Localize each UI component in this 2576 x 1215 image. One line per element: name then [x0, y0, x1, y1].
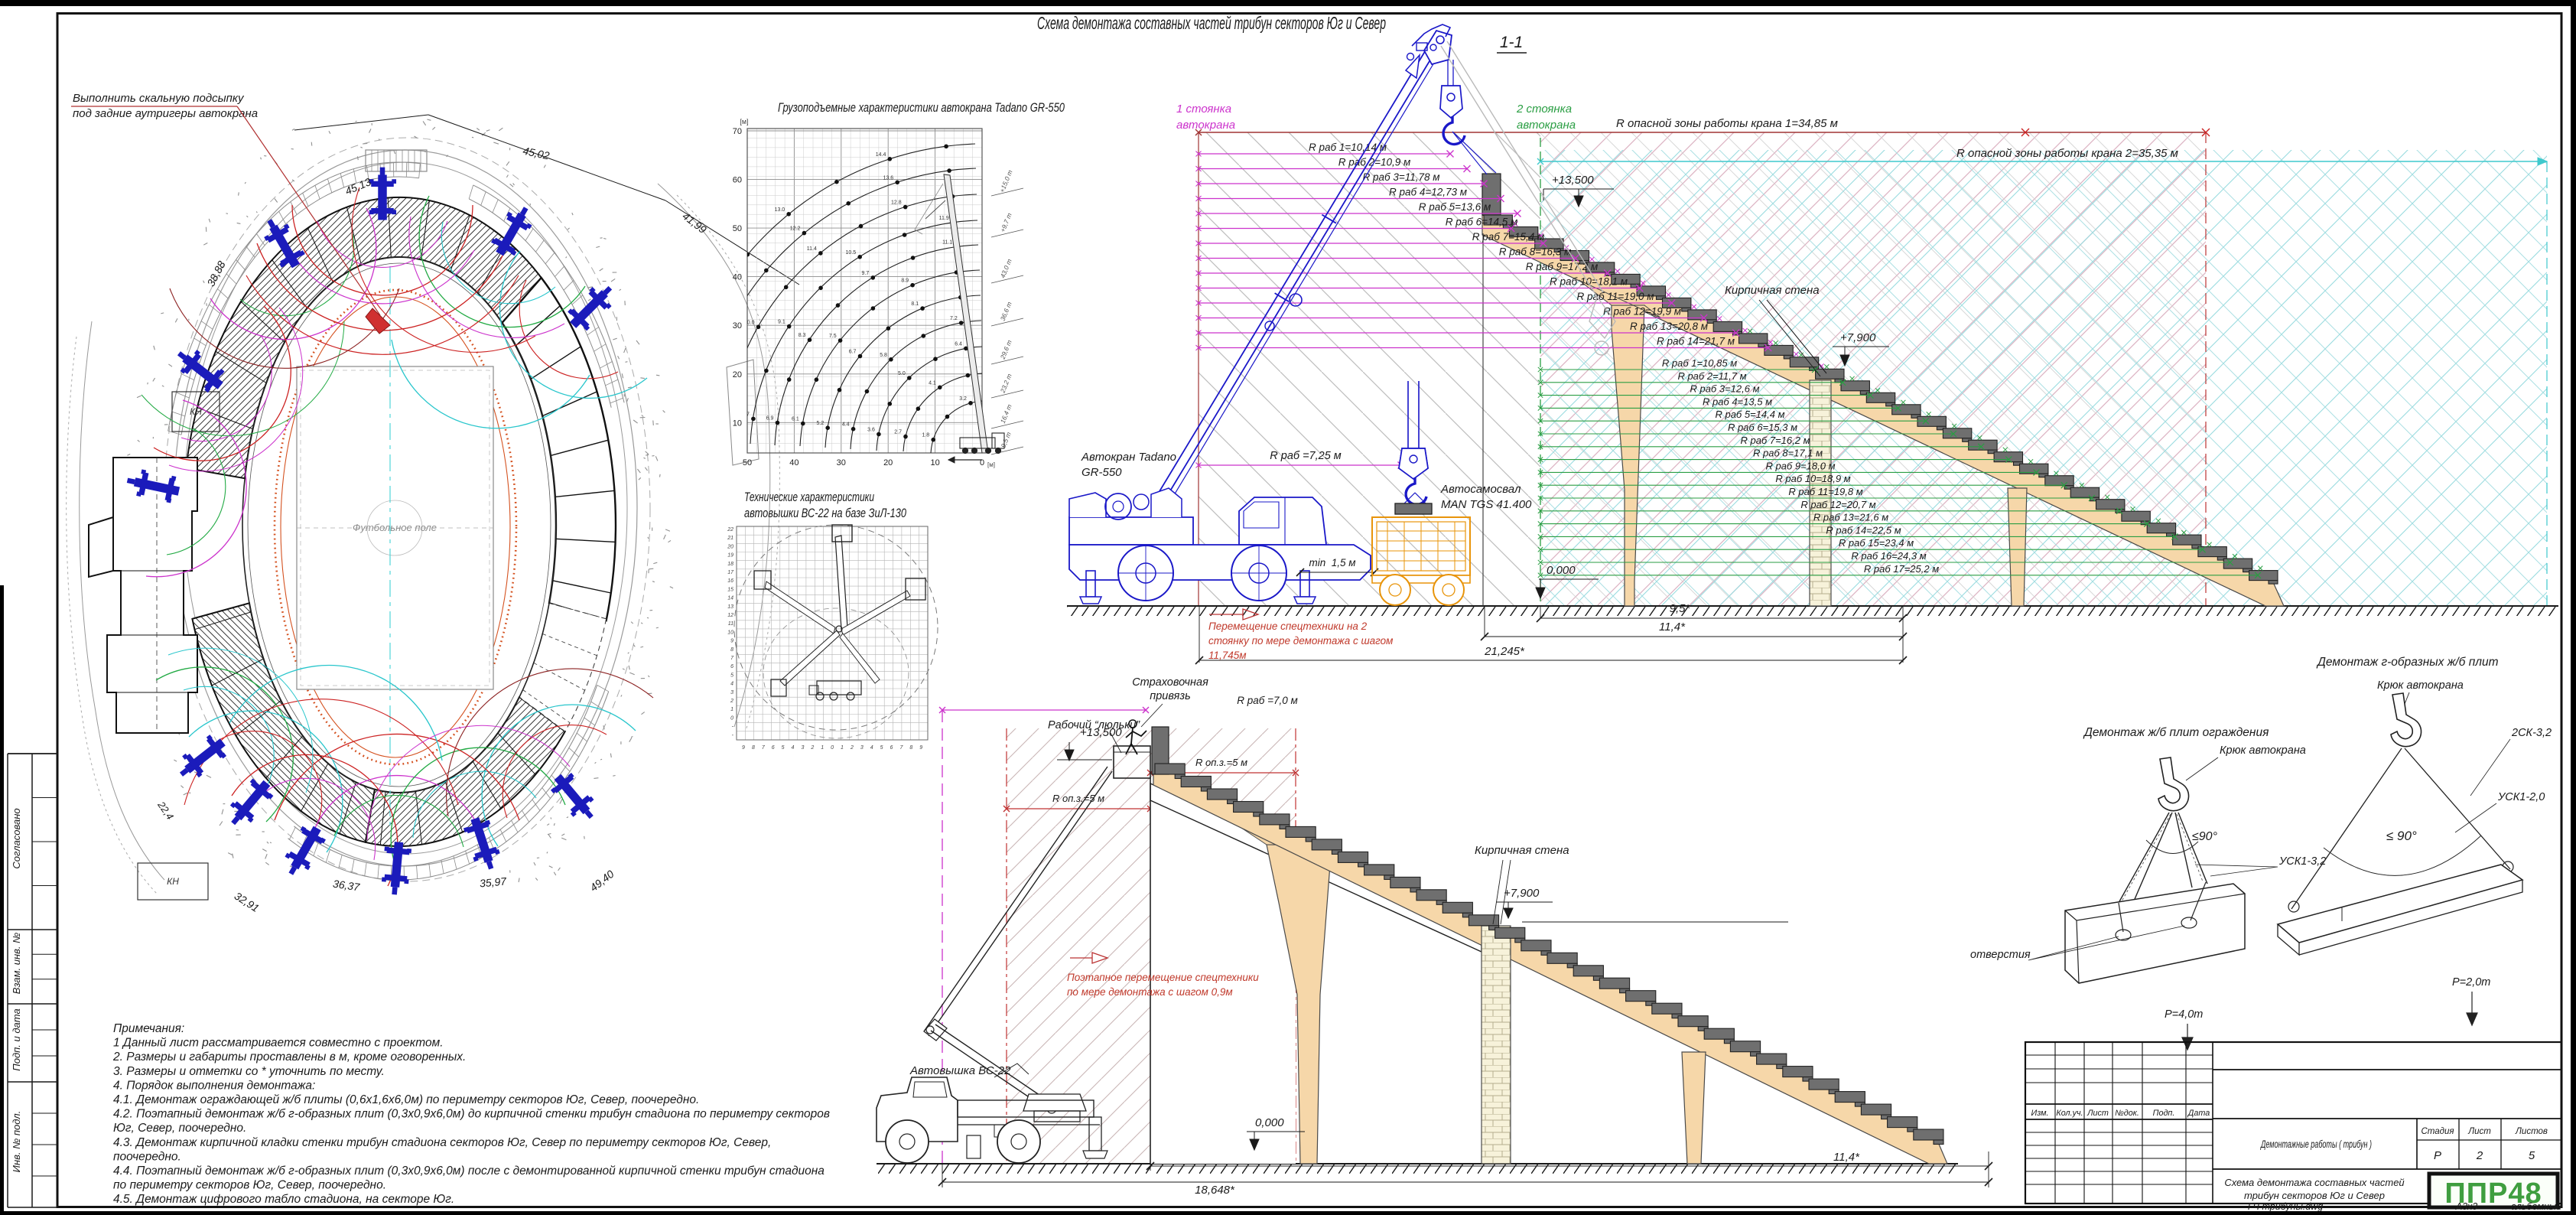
- svg-text:Автосамосвал: Автосамосвал: [1440, 483, 1521, 496]
- svg-text:13.6: 13.6: [883, 175, 894, 181]
- svg-text:№док.: №док.: [2115, 1109, 2139, 1118]
- svg-text:Крюк автокрана: Крюк автокрана: [2377, 679, 2464, 692]
- svg-text:1: 1: [821, 745, 824, 751]
- svg-text:0: 0: [730, 715, 733, 721]
- svg-text:12.8: 12.8: [891, 200, 902, 206]
- svg-text:Стадия: Стадия: [2421, 1127, 2454, 1136]
- svg-text:8: 8: [730, 647, 733, 653]
- svg-text:R раб =7,25 м: R раб =7,25 м: [1270, 450, 1342, 462]
- svg-text:14.4: 14.4: [876, 152, 886, 158]
- svg-text:R раб 5=14,4 м: R раб 5=14,4 м: [1715, 409, 1784, 420]
- svg-text:15: 15: [727, 587, 733, 592]
- svg-text:отверстия: отверстия: [1970, 949, 2031, 961]
- svg-text:+7,900: +7,900: [1840, 331, 1876, 344]
- svg-text:1: 1: [841, 745, 844, 751]
- svg-text:5.0: 5.0: [898, 371, 906, 376]
- svg-text:18,648*: 18,648*: [1195, 1184, 1235, 1197]
- svg-text:11.9: 11.9: [939, 216, 949, 221]
- svg-text:Р=2,0m: Р=2,0m: [2452, 976, 2490, 989]
- svg-text:1: 1: [730, 707, 733, 712]
- svg-text:Схема демонтажа составных част: Схема демонтажа составных частей: [2224, 1177, 2404, 1188]
- svg-text:21,245*: 21,245*: [1484, 645, 1525, 658]
- svg-text:5: 5: [730, 673, 733, 678]
- svg-text:5: 5: [2529, 1149, 2535, 1162]
- svg-text:10.5: 10.5: [846, 250, 857, 256]
- svg-text:0,000: 0,000: [1547, 564, 1576, 577]
- svg-text:60: 60: [733, 176, 742, 185]
- svg-text:2: 2: [730, 699, 733, 704]
- svg-text:6: 6: [730, 664, 733, 669]
- svg-text:5: 5: [782, 745, 785, 751]
- svg-text:Автокран Tadano: Автокран Tadano: [1081, 451, 1176, 464]
- svg-text:Подп. и дата: Подп. и дата: [11, 1008, 22, 1070]
- svg-text:≤ 90°: ≤ 90°: [2386, 829, 2417, 843]
- svg-text:30: 30: [837, 458, 846, 467]
- svg-text:Демонтажные работы ( трибун ): Демонтажные работы ( трибун ): [2260, 1138, 2372, 1150]
- svg-text:[м]: [м]: [740, 118, 748, 125]
- svg-text:4.2. Поэтапный демонтаж ж/б г-: 4.2. Поэтапный демонтаж ж/б г-образных п…: [113, 1108, 830, 1121]
- svg-text:Технические характеристики: Технические характеристики: [744, 490, 874, 504]
- svg-text:30: 30: [733, 321, 742, 331]
- svg-text:под задние аутригеры автокрана: под задние аутригеры автокрана: [73, 107, 258, 120]
- svg-text:альбомный: альбомный: [2511, 1201, 2561, 1212]
- svg-text:10: 10: [733, 419, 742, 428]
- svg-text:R раб 4=13,5 м: R раб 4=13,5 м: [1703, 396, 1772, 407]
- svg-text:4: 4: [730, 682, 733, 687]
- svg-text:10: 10: [930, 458, 939, 467]
- svg-text:R раб 12=20,7 м: R раб 12=20,7 м: [1800, 499, 1875, 510]
- svg-text:4.5. Демонтаж цифрового табло: 4.5. Демонтаж цифрового табло стадиона, …: [113, 1193, 454, 1206]
- svg-text:4.1. Демонтаж ограждающей ж/б: 4.1. Демонтаж ограждающей ж/б плиты (0,6…: [113, 1093, 699, 1106]
- svg-text:Страховочная: Страховочная: [1132, 676, 1208, 689]
- svg-text:R раб 3=12,6 м: R раб 3=12,6 м: [1690, 383, 1759, 395]
- svg-text:35,97: 35,97: [479, 875, 508, 889]
- svg-text:9: 9: [919, 745, 922, 751]
- svg-text:8.3: 8.3: [798, 333, 806, 338]
- svg-text:+13,500: +13,500: [1552, 174, 1594, 187]
- svg-text:R раб 3=11,78 м: R раб 3=11,78 м: [1362, 171, 1439, 183]
- svg-text:Выполнить скальную подсыпку: Выполнить скальную подсыпку: [73, 92, 245, 105]
- svg-text:8.9: 8.9: [901, 279, 909, 284]
- svg-text:Листов: Листов: [2515, 1127, 2548, 1136]
- svg-text:0: 0: [831, 745, 834, 751]
- svg-text:Р: Р: [2434, 1149, 2441, 1162]
- svg-text:R раб 15=23,4 м: R раб 15=23,4 м: [1839, 537, 1914, 549]
- svg-text:R раб 5=13,6 м: R раб 5=13,6 м: [1419, 201, 1491, 213]
- svg-text:8.1: 8.1: [911, 301, 919, 307]
- svg-text:Автовышка ВС-22: Автовышка ВС-22: [909, 1064, 1011, 1077]
- svg-text:2: 2: [850, 745, 854, 751]
- svg-text:3. Размеры и отметки со * уточ: 3. Размеры и отметки со * уточнить по ме…: [113, 1065, 385, 1078]
- svg-text:min 1,5 м: min 1,5 м: [1309, 557, 1355, 568]
- svg-text:Кирпичная стена: Кирпичная стена: [1475, 844, 1569, 857]
- svg-text:4. Порядок выполнения демонтаж: 4. Порядок выполнения демонтажа:: [113, 1079, 315, 1092]
- svg-text:Изм.: Изм.: [2031, 1109, 2048, 1118]
- svg-text:10: 10: [727, 630, 733, 635]
- svg-text:R раб 7=16,2 м: R раб 7=16,2 м: [1740, 435, 1810, 446]
- svg-text:20: 20: [733, 370, 742, 379]
- svg-text:11,745м: 11,745м: [1208, 650, 1247, 661]
- svg-text:3: 3: [860, 745, 864, 751]
- svg-text:12.2: 12.2: [790, 226, 801, 232]
- svg-text:Перемещение спецтехники на 2: Перемещение спецтехники на 2: [1208, 621, 1368, 632]
- svg-text:4.3. Демонтаж кирпичной кладки: 4.3. Демонтаж кирпичной кладки стенки тр…: [113, 1136, 771, 1149]
- svg-text:3.2: 3.2: [959, 396, 967, 402]
- svg-text:Демонтаж г-образных ж/б плит: Демонтаж г-образных ж/б плит: [2316, 656, 2499, 669]
- svg-text:поочередно.: поочередно.: [113, 1150, 181, 1163]
- svg-text:6.4: 6.4: [955, 341, 962, 347]
- svg-text:3.6: 3.6: [867, 427, 875, 432]
- svg-text:Лист: Лист: [2467, 1127, 2491, 1136]
- svg-text:0,000: 0,000: [1255, 1116, 1284, 1129]
- svg-text:17: 17: [727, 570, 734, 575]
- svg-text:+13,500: +13,500: [1080, 726, 1122, 739]
- svg-text:Грузоподъемные характеристики: Грузоподъемные характеристики автокрана …: [778, 101, 1065, 115]
- svg-text:4.4. Поэтапный демонтаж ж/б г-: 4.4. Поэтапный демонтаж ж/б г-образных п…: [113, 1165, 825, 1178]
- svg-text:[м]: [м]: [987, 461, 995, 468]
- svg-text:2.7: 2.7: [894, 430, 902, 435]
- svg-text:R раб 14=21,7 м: R раб 14=21,7 м: [1657, 336, 1735, 347]
- svg-text:20: 20: [727, 544, 733, 549]
- svg-text:Инв. № подл.: Инв. № подл.: [11, 1111, 22, 1173]
- svg-text:4.1: 4.1: [929, 380, 936, 386]
- svg-text:8: 8: [752, 745, 755, 751]
- svg-text:Схема демонтажа составных част: Схема демонтажа составных частей трибун …: [1037, 13, 1386, 33]
- svg-text:КН: КН: [167, 876, 179, 887]
- svg-text:R раб 6=14,5 м: R раб 6=14,5 м: [1446, 217, 1518, 228]
- svg-text:R раб 1=10,85 м: R раб 1=10,85 м: [1662, 357, 1737, 369]
- svg-text:Демонтаж ж/б плит ограждения: Демонтаж ж/б плит ограждения: [2083, 726, 2269, 739]
- svg-text:22: 22: [727, 527, 733, 533]
- svg-text:16: 16: [727, 578, 733, 584]
- svg-text:УСК1-2,0: УСК1-2,0: [2497, 791, 2545, 803]
- svg-text:1.8: 1.8: [922, 433, 929, 438]
- svg-text:автокрана: автокрана: [1517, 119, 1576, 132]
- svg-text:Кирпичная стена: Кирпичная стена: [1725, 284, 1820, 297]
- svg-text:7.2: 7.2: [950, 316, 958, 321]
- svg-text:Поэтапное перемещение спецтехн: Поэтапное перемещение спецтехники: [1067, 972, 1259, 983]
- svg-text:2: 2: [2476, 1149, 2483, 1162]
- svg-text:R оп.з.=5 м: R оп.з.=5 м: [1052, 793, 1104, 804]
- svg-text:4: 4: [870, 745, 873, 751]
- svg-text:Примечания:: Примечания:: [113, 1022, 184, 1035]
- svg-text:ГЧ трибуны.dwg: ГЧ трибуны.dwg: [2248, 1201, 2323, 1212]
- svg-text:автокрана: автокрана: [1176, 119, 1235, 132]
- svg-text:2 стоянка: 2 стоянка: [1516, 103, 1572, 116]
- svg-text:А3х3: А3х3: [2455, 1201, 2478, 1212]
- svg-text:Р=4,0m: Р=4,0m: [2165, 1008, 2203, 1021]
- svg-text:R раб 13=20,8 м: R раб 13=20,8 м: [1630, 321, 1708, 332]
- svg-text:13: 13: [727, 604, 733, 610]
- svg-text:9: 9: [730, 639, 733, 644]
- svg-text:R раб 7=15,4 м: R раб 7=15,4 м: [1472, 231, 1545, 243]
- svg-text:по периметру секторов Юг, Севе: по периметру секторов Юг, Север, поочере…: [113, 1179, 386, 1192]
- svg-text:1-1: 1-1: [1500, 34, 1523, 51]
- svg-text:привязь: привязь: [1150, 690, 1190, 702]
- svg-text:R раб 17=25,2 м: R раб 17=25,2 м: [1864, 563, 1939, 575]
- svg-text:GR-550: GR-550: [1081, 466, 1122, 479]
- svg-text:19: 19: [727, 553, 733, 559]
- svg-text:трибун секторов Юг и Север: трибун секторов Юг и Север: [2244, 1190, 2385, 1201]
- svg-text:50: 50: [733, 224, 742, 233]
- svg-text:автовышки ВС-22 на базе ЗиЛ-13: автовышки ВС-22 на базе ЗиЛ-130: [744, 507, 907, 520]
- svg-text:R раб 11=19,0 м: R раб 11=19,0 м: [1576, 291, 1654, 302]
- svg-text:Кол.уч.: Кол.уч.: [2056, 1109, 2083, 1118]
- svg-text:R раб 8=17,1 м: R раб 8=17,1 м: [1753, 448, 1823, 459]
- svg-text:R раб 6=15,3 м: R раб 6=15,3 м: [1728, 422, 1797, 433]
- svg-text:R опасной зоны работы крана 1=: R опасной зоны работы крана 1=34,85 м: [1616, 117, 1838, 130]
- svg-text:9.7: 9.7: [862, 271, 870, 276]
- svg-text:R раб 16=24,3 м: R раб 16=24,3 м: [1851, 550, 1926, 562]
- svg-text:R раб 14=22,5 м: R раб 14=22,5 м: [1826, 524, 1901, 536]
- svg-text:9,5*: 9,5*: [1670, 602, 1691, 615]
- svg-text:5.2: 5.2: [817, 421, 825, 426]
- svg-text:1 Данный лист рассматривается: 1 Данный лист рассматривается совместно …: [113, 1037, 444, 1050]
- svg-text:R оп.з.=5 м: R оп.з.=5 м: [1195, 757, 1247, 768]
- svg-text:R раб 10=18,9 м: R раб 10=18,9 м: [1775, 473, 1850, 484]
- svg-text:УСК1-3,2: УСК1-3,2: [2278, 855, 2326, 868]
- svg-text:3: 3: [730, 690, 733, 695]
- svg-text:11: 11: [728, 621, 733, 627]
- svg-text:70: 70: [733, 127, 742, 136]
- svg-text:11,4*: 11,4*: [1659, 621, 1686, 634]
- svg-text:Юг, Север, поочередно.: Юг, Север, поочередно.: [113, 1122, 246, 1135]
- svg-text:R раб =7,0 м: R раб =7,0 м: [1237, 695, 1298, 706]
- svg-text:R раб 9=18,0 м: R раб 9=18,0 м: [1765, 460, 1835, 471]
- svg-text:Согласовано: Согласовано: [11, 808, 22, 868]
- svg-text:6: 6: [890, 745, 893, 751]
- svg-text:≤90°: ≤90°: [2192, 830, 2218, 843]
- svg-text:20: 20: [883, 458, 893, 467]
- svg-text:5: 5: [880, 745, 883, 751]
- svg-text:11.4: 11.4: [807, 246, 817, 252]
- svg-text:6.9: 6.9: [766, 415, 774, 421]
- svg-text:R раб 12=19,9 м: R раб 12=19,9 м: [1603, 306, 1681, 318]
- svg-text:11.1: 11.1: [942, 240, 952, 246]
- svg-text:+7,900: +7,900: [1504, 887, 1540, 900]
- svg-text:11,4*: 11,4*: [1833, 1151, 1860, 1164]
- svg-text:14: 14: [727, 596, 733, 601]
- svg-text:8: 8: [909, 745, 912, 751]
- svg-text:Футбольное поле: Футбольное поле: [353, 522, 437, 533]
- svg-text:40: 40: [789, 458, 798, 467]
- svg-text:R раб 13=21,6 м: R раб 13=21,6 м: [1813, 512, 1888, 523]
- svg-text:12: 12: [727, 613, 733, 618]
- svg-text:18: 18: [727, 562, 733, 567]
- svg-text:Крюк автокрана: Крюк автокрана: [2220, 744, 2306, 757]
- svg-text:Лист: Лист: [2086, 1109, 2109, 1118]
- svg-text:9: 9: [742, 745, 745, 751]
- svg-text:2СК-3,2: 2СК-3,2: [2511, 727, 2552, 739]
- svg-text:стоянку по мере демонтажа с ша: стоянку по мере демонтажа с шагом: [1208, 635, 1393, 647]
- svg-text:по мере демонтажа с шагом 0,9м: по мере демонтажа с шагом 0,9м: [1067, 986, 1233, 998]
- svg-text:R раб 2=11,7 м: R раб 2=11,7 м: [1677, 370, 1746, 382]
- svg-text:Взам. инв. №: Взам. инв. №: [11, 933, 22, 994]
- svg-text:Дата: Дата: [2187, 1109, 2210, 1118]
- svg-text:5.8: 5.8: [880, 353, 887, 358]
- svg-text:9.1: 9.1: [778, 320, 785, 325]
- svg-text:2. Размеры и габариты проставл: 2. Размеры и габариты проставлены в м, к…: [112, 1051, 466, 1064]
- svg-text:21: 21: [727, 536, 733, 541]
- svg-text:3: 3: [801, 745, 804, 751]
- svg-text:1 стоянка: 1 стоянка: [1176, 103, 1231, 116]
- svg-text:4: 4: [792, 745, 795, 751]
- svg-text:2: 2: [810, 745, 814, 751]
- svg-text:R раб 4=12,73 м: R раб 4=12,73 м: [1389, 187, 1467, 198]
- svg-text:MAN TGS 41.400: MAN TGS 41.400: [1441, 498, 1532, 511]
- svg-text:13.0: 13.0: [775, 207, 785, 213]
- svg-text:6.7: 6.7: [849, 350, 857, 355]
- svg-text:7.5: 7.5: [829, 334, 837, 339]
- svg-text:40: 40: [733, 273, 742, 282]
- svg-text:R раб 10=18,1 м: R раб 10=18,1 м: [1550, 276, 1628, 288]
- svg-text:6: 6: [772, 745, 775, 751]
- svg-text:R раб 8=16,3 м: R раб 8=16,3 м: [1499, 246, 1572, 258]
- svg-text:R раб 11=19,8 м: R раб 11=19,8 м: [1788, 486, 1862, 497]
- svg-text:R опасной зоны работы крана 2=: R опасной зоны работы крана 2=35,35 м: [1956, 147, 2178, 160]
- svg-text:4.4: 4.4: [842, 422, 850, 428]
- svg-text:50: 50: [743, 458, 752, 467]
- svg-text:6.1: 6.1: [792, 416, 799, 422]
- svg-text:Подп.: Подп.: [2153, 1109, 2175, 1118]
